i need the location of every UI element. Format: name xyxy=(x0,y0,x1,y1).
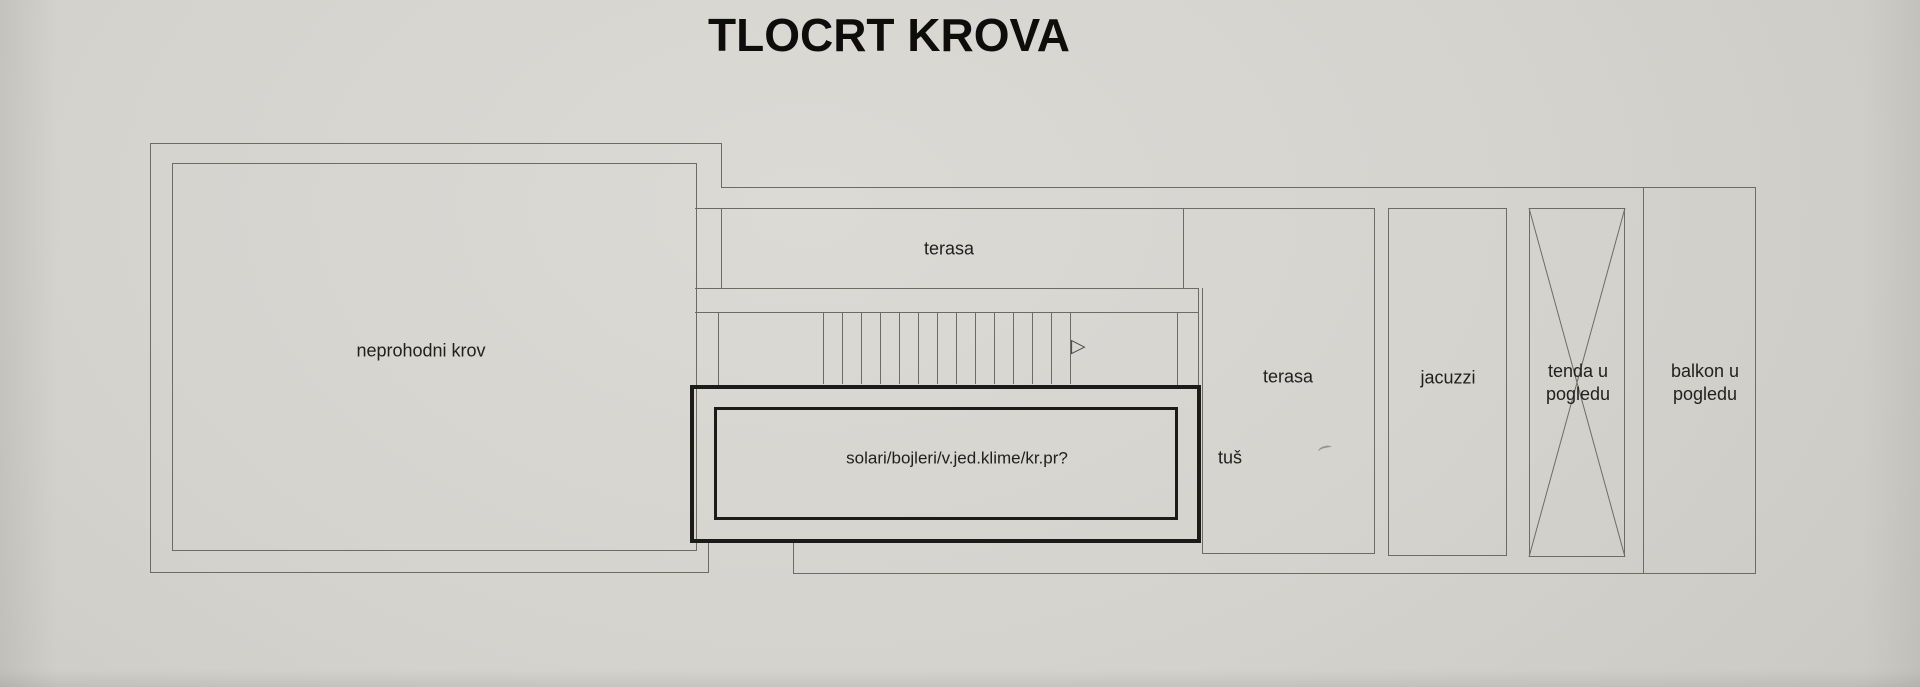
room-label-tus: tuš xyxy=(1218,447,1242,470)
left-block-outer-right-step-wall xyxy=(721,143,722,188)
terasa-strip-right-wall xyxy=(1183,208,1184,288)
stair-tick xyxy=(1013,313,1014,384)
stair-tick xyxy=(1051,313,1052,384)
stairs xyxy=(0,313,1920,384)
stair-tick xyxy=(861,313,862,384)
left-block-outer-bottom-wall xyxy=(150,572,708,573)
terasa-strip-left-wall xyxy=(721,208,722,288)
room-label-balkon: balkon u pogledu xyxy=(1671,360,1739,406)
terasa-right-south-wall xyxy=(1202,553,1375,554)
room-label-tenda: tenda u pogledu xyxy=(1546,360,1610,406)
notch-right-wall xyxy=(793,543,794,573)
terasa-strip-top-wall xyxy=(695,208,1375,209)
terasa-right-east-wall xyxy=(1374,208,1375,553)
stair-tick xyxy=(918,313,919,384)
room-label-jacuzzi: jacuzzi xyxy=(1420,367,1475,390)
stair-tick xyxy=(842,313,843,384)
stair-tick xyxy=(899,313,900,384)
room-label-balkon-line2: pogledu xyxy=(1671,383,1739,406)
left-block-outer-top-wall xyxy=(150,143,722,144)
bottom-long-wall xyxy=(793,573,1755,574)
room-label-tenda-line1: tenda u xyxy=(1546,360,1610,383)
stair-tick xyxy=(937,313,938,384)
pen-smudge-mark xyxy=(1317,444,1332,454)
stair-tick xyxy=(994,313,995,384)
room-label-tenda-line2: pogledu xyxy=(1546,383,1610,406)
room-label-terasa-right: terasa xyxy=(1263,366,1313,389)
notch-left-wall xyxy=(708,543,709,573)
stair-tick xyxy=(975,313,976,384)
stair-tick xyxy=(880,313,881,384)
walkway-top-wall xyxy=(695,288,1199,289)
stair-tick xyxy=(823,313,824,384)
room-label-solari-box: solari/bojleri/v.jed.klime/kr.pr? xyxy=(846,447,1068,470)
top-parapet-wall xyxy=(721,187,1756,188)
terasa-right-west-wall xyxy=(1202,288,1203,553)
stair-tick xyxy=(1032,313,1033,384)
stairs-direction-arrow-icon: ▷ xyxy=(1071,337,1086,356)
room-label-balkon-line1: balkon u xyxy=(1671,360,1739,383)
room-label-terasa-upper: terasa xyxy=(924,238,974,261)
roof-plan-photo: TLOCRT KROVA neprohodni krov terasa ▷ so… xyxy=(0,0,1920,687)
page-title: TLOCRT KROVA xyxy=(708,8,1070,62)
stair-tick xyxy=(956,313,957,384)
